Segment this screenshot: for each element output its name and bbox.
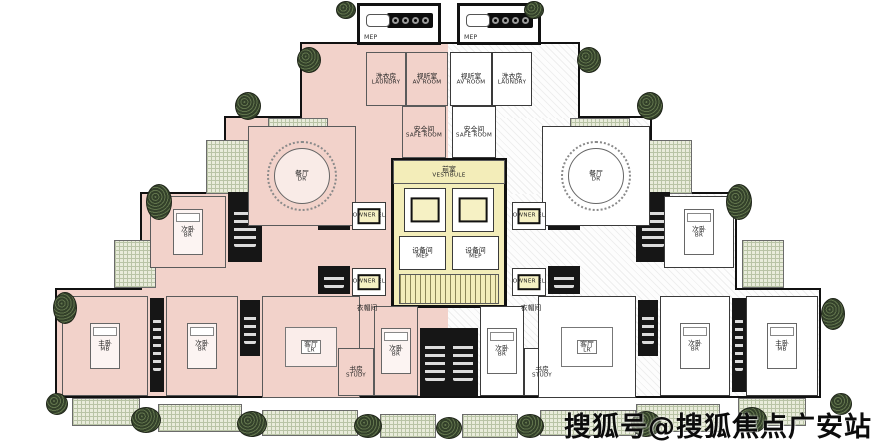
burner-icon: [492, 17, 499, 24]
planter-icon: [726, 184, 752, 220]
elev-icon: [517, 208, 540, 224]
owner-elevator-left-2: OWNER EL: [352, 268, 386, 296]
laundry-room-left: 洗衣房LAUNDRY: [366, 52, 406, 106]
planter-icon: [637, 92, 663, 120]
planter-icon: [354, 414, 382, 438]
planted-terrace: [158, 404, 242, 432]
burner-icon: [422, 17, 429, 24]
bedroom-center-right: 次卧BR: [480, 306, 524, 396]
planted-terrace: [206, 140, 250, 194]
planter-icon: [336, 1, 356, 19]
sink-icon: [366, 14, 390, 27]
study-left: 书房STUDY: [338, 348, 374, 396]
room-label: 洗衣房LAUNDRY: [374, 63, 398, 95]
stove-icon: [387, 13, 433, 28]
burner-icon: [502, 17, 509, 24]
sofa-icon: [561, 327, 613, 367]
watermark: 搜狐号@搜狐焦点广安站: [564, 405, 872, 444]
laundry-room-right: 洗衣房LAUNDRY: [492, 52, 532, 106]
bed-icon: [381, 328, 411, 374]
planter-icon: [516, 414, 544, 438]
planted-terrace: [648, 140, 692, 194]
bed-icon: [187, 323, 217, 369]
service-core-wall: [240, 300, 260, 356]
planter-icon: [53, 292, 77, 324]
vestibule: 前室VESTIBULE: [393, 160, 505, 184]
table-icon: [568, 148, 624, 204]
room-label: 设备间MEP: [409, 243, 437, 263]
service-core-wall: [448, 328, 478, 396]
safe-room-left: 安全间SAFE ROOM: [402, 106, 446, 158]
service-core-wall: [732, 298, 746, 392]
planter-icon: [46, 393, 68, 415]
mep-room-2: 设备间MEP: [452, 236, 499, 270]
room-label: 书房STUDY: [345, 358, 366, 387]
planter-icon: [577, 47, 601, 73]
burner-icon: [392, 17, 399, 24]
stairs-icon: [400, 275, 498, 303]
service-core-wall: [150, 298, 164, 392]
bed-icon: [487, 328, 517, 374]
room-label: 设备间MEP: [462, 243, 490, 263]
safe-room-right: 安全间SAFE ROOM: [452, 106, 496, 158]
burner-icon: [402, 17, 409, 24]
bedroom-right-mid: 次卧BR: [664, 196, 734, 268]
sink-icon: [466, 14, 490, 27]
kitchen-label: MEP: [464, 34, 477, 41]
elev-icon: [411, 197, 440, 222]
av-room-right: 视听室AV ROOM: [450, 52, 492, 106]
planter-icon: [297, 47, 321, 73]
bedroom-center-left: 次卧BR: [374, 306, 418, 396]
sofa-icon: [285, 327, 337, 367]
table-icon: [274, 148, 330, 204]
room-label: 安全间SAFE ROOM: [461, 117, 487, 148]
room-label: 洗衣房LAUNDRY: [500, 63, 524, 95]
planter-icon: [436, 417, 462, 439]
elev-icon: [517, 274, 540, 290]
planter-icon: [235, 92, 261, 120]
service-core-wall: [638, 300, 658, 356]
room-label: 视听室AV ROOM: [415, 63, 440, 95]
service-core-wall: [548, 266, 580, 294]
burner-icon: [412, 17, 419, 24]
room-label: 视听室AV ROOM: [459, 63, 484, 95]
planter-icon: [131, 407, 161, 433]
owner-elevator-right-2: OWNER EL: [512, 268, 546, 296]
owner-elevator-left-1: OWNER EL: [352, 202, 386, 230]
mep-room-1: 设备间MEP: [399, 236, 446, 270]
bedroom-left-bottom: 次卧BR: [166, 296, 238, 396]
kitchen-left: MEP: [357, 3, 441, 45]
owner-elevator-right-1: OWNER EL: [512, 202, 546, 230]
elevator-1: [404, 188, 446, 232]
planted-terrace: [380, 414, 436, 438]
planter-icon: [237, 411, 267, 437]
planted-terrace: [72, 398, 140, 426]
planter-icon: [524, 1, 544, 19]
bedroom-right-bottom: 次卧BR: [660, 296, 730, 396]
dining-room-right: 餐厅DR: [542, 126, 650, 226]
bed-icon: [680, 323, 710, 369]
room-label: 安全间SAFE ROOM: [411, 117, 437, 148]
elev-icon: [357, 208, 380, 224]
elev-icon: [459, 197, 488, 222]
planter-icon: [821, 298, 845, 330]
dining-room-left: 餐厅DR: [248, 126, 356, 226]
planted-terrace: [742, 240, 784, 288]
stair-core: [399, 274, 499, 304]
bed-icon: [173, 209, 203, 255]
planted-terrace: [462, 414, 518, 438]
burner-icon: [512, 17, 519, 24]
planter-icon: [146, 184, 172, 220]
service-core-wall: [318, 266, 350, 294]
elev-icon: [357, 274, 380, 290]
living-room-right: 客厅LR: [538, 296, 636, 398]
burner-icon: [522, 17, 529, 24]
av-room-left: 视听室AV ROOM: [406, 52, 448, 106]
bed-icon: [684, 209, 714, 255]
room-label: 前室VESTIBULE: [415, 165, 483, 179]
elevator-2: [452, 188, 494, 232]
service-core-wall: [420, 328, 450, 396]
floor-plan: 搜狐号@搜狐焦点广安站 洗衣房LAUNDRY视听室AV ROOM视听室AV RO…: [0, 0, 876, 448]
planted-terrace: [262, 410, 358, 436]
bed-icon: [90, 323, 120, 369]
kitchen-label: MEP: [364, 34, 377, 41]
master-bedroom-right: 主卧MB: [746, 296, 818, 396]
bed-icon: [767, 323, 797, 369]
